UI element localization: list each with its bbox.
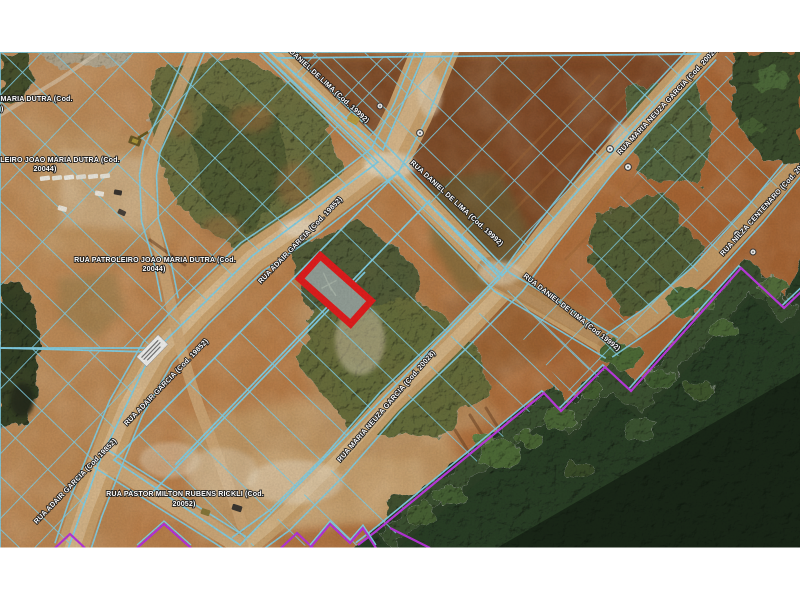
- svg-text:20044): 20044): [143, 265, 166, 273]
- svg-text:20052): 20052): [173, 500, 196, 508]
- svg-text:RUA PATROLEIRO JOAO MARIA DUTR: RUA PATROLEIRO JOAO MARIA DUTRA (Cod.: [74, 256, 236, 264]
- svg-text:20044): 20044): [34, 165, 57, 173]
- svg-text:RUA PASTOR MILTON RUBENS RICKL: RUA PASTOR MILTON RUBENS RICKLI (Cod.: [106, 490, 264, 498]
- svg-text:RUA JOAO MARIA DUTRA (Cod.: RUA JOAO MARIA DUTRA (Cod.: [0, 95, 73, 103]
- svg-text:RUA PATROLEIRO JOAO MARIA DUTR: RUA PATROLEIRO JOAO MARIA DUTRA (Cod.: [0, 156, 120, 164]
